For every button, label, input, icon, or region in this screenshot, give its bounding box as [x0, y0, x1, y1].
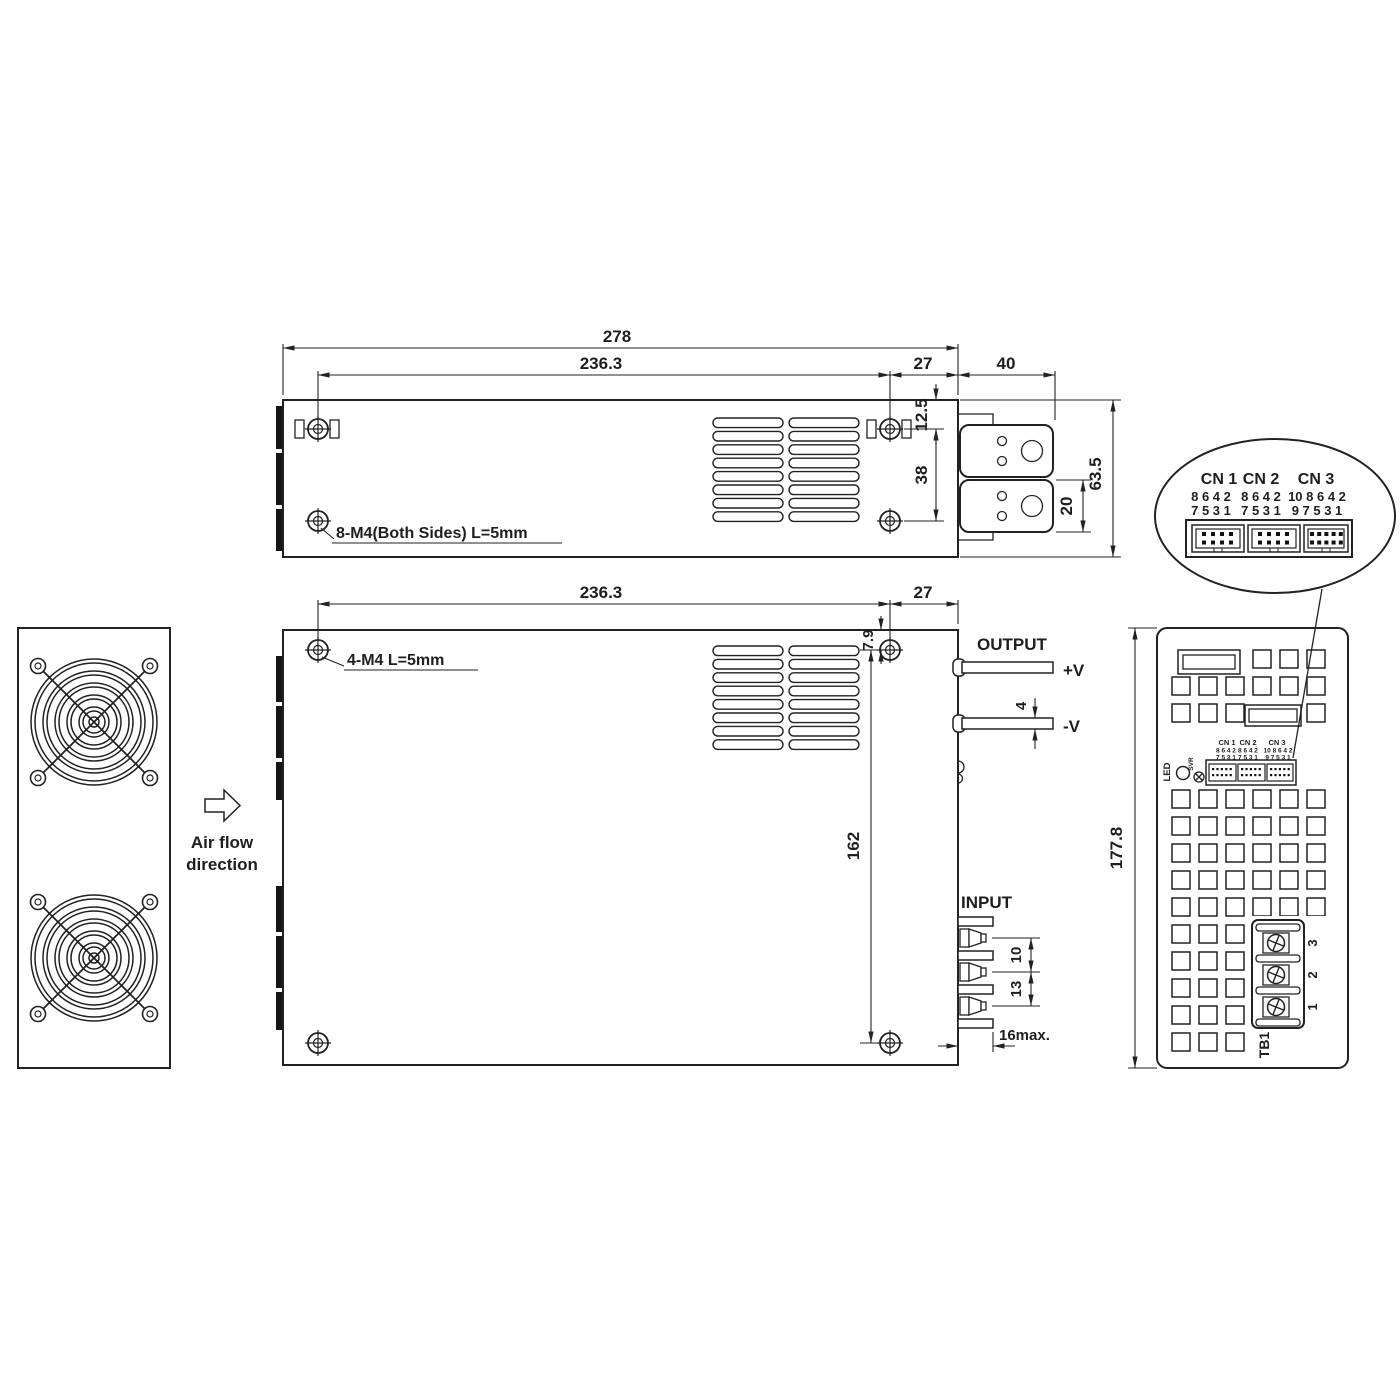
louver-slot [713, 700, 783, 710]
louver-slot [789, 485, 859, 495]
mechanical-drawing-page: 278 236.3 27 40 12.5 38 20 63.5 8-M4(Bot… [0, 0, 1400, 1400]
rear-cn3-label: CN 3 [1268, 738, 1285, 747]
rear-cn-pin [1270, 774, 1272, 776]
rear-cn-pin [1230, 774, 1232, 776]
dim-7-9: 7.9 [860, 630, 877, 651]
rear-cn-pin [1250, 774, 1252, 776]
busbar-negative [962, 718, 1053, 729]
cn-pin [1258, 532, 1262, 536]
dim-236-3: 236.3 [580, 354, 623, 373]
vent-hole [1172, 677, 1190, 695]
vent-hole [1172, 817, 1190, 835]
rear-cn-pin [1283, 774, 1285, 776]
louver-slot [713, 686, 783, 696]
vent-hole [1253, 898, 1271, 916]
airflow-label-1: Air flow [191, 833, 254, 852]
rear-slot-mid [1245, 705, 1301, 726]
vent-hole [1280, 844, 1298, 862]
busbar-terminal-bottom [960, 480, 1053, 532]
louver-slot [789, 458, 859, 468]
louver-slot [789, 431, 859, 441]
vent-hole [1199, 1006, 1217, 1024]
input-screw-base [960, 929, 969, 947]
rear-cn-pin [1216, 774, 1218, 776]
vent-hole [1199, 925, 1217, 943]
tb1-screws [1263, 933, 1289, 1018]
input-screw-head [969, 963, 981, 981]
louver-slot [713, 713, 783, 723]
rear-cn-pin [1274, 768, 1276, 770]
rear-cn-pin [1279, 774, 1281, 776]
vent-hole [1172, 1006, 1190, 1024]
cn-pin [1285, 532, 1289, 536]
dim-63-5: 63.5 [1086, 457, 1105, 490]
cn-pin [1339, 541, 1343, 545]
fan-corner-ring [31, 1007, 46, 1022]
louver-slot [789, 673, 859, 683]
vent-hole [1280, 650, 1298, 668]
rear-cn-pin [1241, 768, 1243, 770]
airflow-label-2: direction [186, 855, 258, 874]
vent-hole [1172, 979, 1190, 997]
input-terminal-screws [960, 929, 986, 1015]
louver-slot [713, 673, 783, 683]
rear-cn2-pins-top: 8 6 4 2 [1238, 748, 1258, 755]
vent-hole [1253, 677, 1271, 695]
output-positive-label: +V [1063, 661, 1085, 680]
top-mounting-note: 8-M4(Both Sides) L=5mm [336, 525, 528, 542]
callout-cn3-pins-bottom: 9 7 5 3 1 [1292, 503, 1343, 518]
pot-label: SVR [1188, 757, 1195, 771]
cn-pin [1229, 532, 1233, 536]
vent-hole [1253, 817, 1271, 835]
vent-hole [1307, 844, 1325, 862]
vent-hole [1307, 677, 1325, 695]
rear-cn-pin [1221, 768, 1223, 770]
rear-cn-pin [1225, 774, 1227, 776]
output-label: OUTPUT [977, 635, 1048, 654]
front-view: 4-M4 L=5mm 236.3 27 7.9 162 OUTPUT +V -V… [275, 583, 1085, 1065]
dim-13: 13 [1008, 981, 1025, 998]
callout-cn1-pins-bottom: 7 5 3 1 [1191, 503, 1231, 518]
vent-hole [1253, 844, 1271, 862]
rear-cn-pin [1225, 768, 1227, 770]
input-screw-base [960, 997, 969, 1015]
louver-slot [713, 418, 783, 428]
vent-hole [1226, 844, 1244, 862]
input-screw-tip [981, 1002, 986, 1010]
fan-corner-ring [31, 771, 46, 786]
vent-hole [1199, 898, 1217, 916]
input-screw-tip [981, 968, 986, 976]
callout-cn2-pins-bottom: 7 5 3 1 [1241, 503, 1281, 518]
tb1-terminal-1: 1 [1305, 1003, 1320, 1010]
dim-16max: 16max. [999, 1027, 1050, 1044]
cn-pin [1229, 541, 1233, 545]
dim-278: 278 [603, 327, 631, 346]
vent-hole [1172, 704, 1190, 722]
cn-pin [1267, 532, 1271, 536]
dim-27: 27 [914, 354, 933, 373]
vent-hole [1172, 844, 1190, 862]
dim-front-236-3: 236.3 [580, 583, 623, 602]
vent-hole [1307, 817, 1325, 835]
tb1-terminal-2: 2 [1305, 971, 1320, 978]
louver-slot [789, 740, 859, 750]
louver-slot [789, 659, 859, 669]
vent-hole [1199, 817, 1217, 835]
fan-corner-ring [31, 659, 46, 674]
cn-pin [1332, 541, 1336, 545]
louver-slot [789, 445, 859, 455]
rear-cn-connector [1238, 764, 1265, 781]
rear-cn3-pins-top: 10 8 6 4 2 [1264, 748, 1293, 755]
cn-pin [1317, 532, 1321, 536]
louver-slot [789, 713, 859, 723]
vent-hole [1307, 871, 1325, 889]
louver-slot [713, 431, 783, 441]
vent-hole [1199, 704, 1217, 722]
vent-hole [1172, 898, 1190, 916]
rear-cn-pin [1245, 768, 1247, 770]
callout-cn1-label: CN 1 [1201, 471, 1238, 488]
input-label: INPUT [961, 893, 1013, 912]
rear-cn-pin [1288, 774, 1290, 776]
fan-corner-ring [143, 659, 158, 674]
input-screw-base [960, 963, 969, 981]
tb1-label: TB1 [1256, 1032, 1272, 1059]
rear-cn-pin [1274, 774, 1276, 776]
louver-slot [789, 498, 859, 508]
dim-4: 4 [1013, 701, 1030, 710]
dim-162: 162 [844, 832, 863, 860]
louver-slot [789, 418, 859, 428]
side-view-fans: Air flow direction [18, 628, 258, 1068]
rear-cn-pin [1212, 774, 1214, 776]
callout-cn1-pins-top: 8 6 4 2 [1191, 489, 1231, 504]
rear-cn-pin [1254, 774, 1256, 776]
rear-cn-connectors [1209, 764, 1293, 781]
callout-cn2-label: CN 2 [1243, 471, 1280, 488]
dim-front-27: 27 [914, 583, 933, 602]
vent-hole [1307, 790, 1325, 808]
vent-hole [1307, 704, 1325, 722]
vent-hole [1172, 925, 1190, 943]
fan-corner-ring [31, 895, 46, 910]
callout-cn2-pins-top: 8 6 4 2 [1241, 489, 1281, 504]
vent-hole [1226, 898, 1244, 916]
vent-hole [1307, 898, 1325, 916]
rear-cn-pin [1245, 774, 1247, 776]
cn-pin [1324, 532, 1328, 536]
rear-cn-pin [1259, 768, 1261, 770]
vent-hole [1199, 952, 1217, 970]
vent-hole [1253, 790, 1271, 808]
vent-hole [1253, 871, 1271, 889]
rear-cn-pin [1250, 768, 1252, 770]
vent-hole [1280, 898, 1298, 916]
busbar-positive [962, 662, 1053, 673]
output-negative-label: -V [1063, 717, 1081, 736]
rear-cn-connector [1267, 764, 1293, 781]
louver-slot [713, 512, 783, 522]
cn-pin [1324, 541, 1328, 545]
vent-hole [1172, 790, 1190, 808]
vent-hole [1199, 677, 1217, 695]
cn-pin [1276, 541, 1280, 545]
rear-cn-pin [1216, 768, 1218, 770]
busbar-terminal-top [960, 425, 1053, 477]
louver-slot [713, 458, 783, 468]
cn-pin [1267, 541, 1271, 545]
rear-cn-pin [1279, 768, 1281, 770]
vent-hole [1280, 871, 1298, 889]
rear-cn1-label: CN 1 [1218, 738, 1235, 747]
louver-slot [713, 485, 783, 495]
vent-hole [1199, 871, 1217, 889]
cn-pin [1220, 532, 1224, 536]
vent-hole [1199, 979, 1217, 997]
airflow-arrow-icon [205, 790, 240, 821]
vent-hole [1226, 817, 1244, 835]
dim-40: 40 [997, 354, 1016, 373]
louver-slot [789, 512, 859, 522]
cn-pin [1276, 532, 1280, 536]
top-view: 278 236.3 27 40 12.5 38 20 63.5 8-M4(Bot… [275, 327, 1121, 557]
tb1-terminal-3: 3 [1305, 939, 1320, 946]
cn-pin [1211, 541, 1215, 545]
rear-cn2-label: CN 2 [1239, 738, 1256, 747]
dim-10: 10 [1008, 947, 1025, 964]
cn-pin [1258, 541, 1262, 545]
fan-corner-ring [143, 1007, 158, 1022]
louver-slot [713, 445, 783, 455]
dimension-diagram: 278 236.3 27 40 12.5 38 20 63.5 8-M4(Bot… [0, 0, 1400, 1400]
input-screw-tip [981, 934, 986, 942]
vent-hole [1226, 871, 1244, 889]
cn-pin [1202, 541, 1206, 545]
led-label: LED [1162, 762, 1173, 781]
fan-corner-ring [143, 895, 158, 910]
rear-cn-pin [1230, 768, 1232, 770]
rear-cn1-pins-top: 8 6 4 2 [1216, 748, 1236, 755]
cn-pin [1310, 541, 1314, 545]
dim-12-5: 12.5 [912, 398, 931, 431]
callout-cn3-label: CN 3 [1298, 471, 1335, 488]
vent-hole [1199, 1033, 1217, 1051]
cn-pin [1310, 532, 1314, 536]
vent-hole [1172, 952, 1190, 970]
vent-hole [1280, 677, 1298, 695]
cn-pin [1285, 541, 1289, 545]
cn-pin [1211, 532, 1215, 536]
input-screw-head [969, 929, 981, 947]
rear-cn-pin [1221, 774, 1223, 776]
louver-slot [713, 646, 783, 656]
louver-slot [789, 726, 859, 736]
cn-pin [1339, 532, 1343, 536]
rear-view: 177.8 CN 1 CN 2 CN 3 8 6 4 2 8 6 4 2 10 … [1107, 628, 1348, 1068]
vent-hole [1226, 952, 1244, 970]
fan-panel [18, 628, 170, 1068]
louver-slot [789, 686, 859, 696]
louver-slot [713, 498, 783, 508]
vent-hole [1226, 704, 1244, 722]
louver-slot [713, 740, 783, 750]
vent-hole [1172, 871, 1190, 889]
cn-pin [1317, 541, 1321, 545]
rear-cn-pin [1270, 768, 1272, 770]
rear-cn-pin [1283, 768, 1285, 770]
vent-hole [1226, 790, 1244, 808]
louver-slot [713, 659, 783, 669]
vent-hole [1226, 677, 1244, 695]
rear-cn-connector [1209, 764, 1236, 781]
rear-slot-top [1178, 650, 1240, 674]
vent-hole [1226, 925, 1244, 943]
callout-cn3-pins-top: 10 8 6 4 2 [1288, 489, 1346, 504]
rear-cn-pin [1241, 774, 1243, 776]
vent-hole [1226, 1033, 1244, 1051]
vent-hole [1253, 650, 1271, 668]
dim-177-8: 177.8 [1107, 827, 1126, 870]
dim-20: 20 [1057, 497, 1076, 516]
louver-slot [789, 646, 859, 656]
louver-slot [713, 726, 783, 736]
front-mounting-note: 4-M4 L=5mm [347, 652, 444, 669]
vent-hole [1199, 790, 1217, 808]
cn-pin [1220, 541, 1224, 545]
louver-slot [789, 472, 859, 482]
callout-connectors [1192, 525, 1348, 552]
vent-hole [1226, 979, 1244, 997]
fan-corner-ring [143, 771, 158, 786]
cn-pin [1332, 532, 1336, 536]
rear-cn-pin [1288, 768, 1290, 770]
vent-hole [1280, 790, 1298, 808]
input-screw-head [969, 997, 981, 1015]
dim-38: 38 [912, 466, 931, 485]
vent-hole [1172, 1033, 1190, 1051]
rear-cn-pin [1212, 768, 1214, 770]
louver-slot [789, 700, 859, 710]
louver-slot [713, 472, 783, 482]
rear-cn-pin [1254, 768, 1256, 770]
rear-cn-pin [1259, 774, 1261, 776]
cn-pin [1202, 532, 1206, 536]
vent-hole [1280, 817, 1298, 835]
vent-hole [1199, 844, 1217, 862]
vent-hole [1226, 1006, 1244, 1024]
